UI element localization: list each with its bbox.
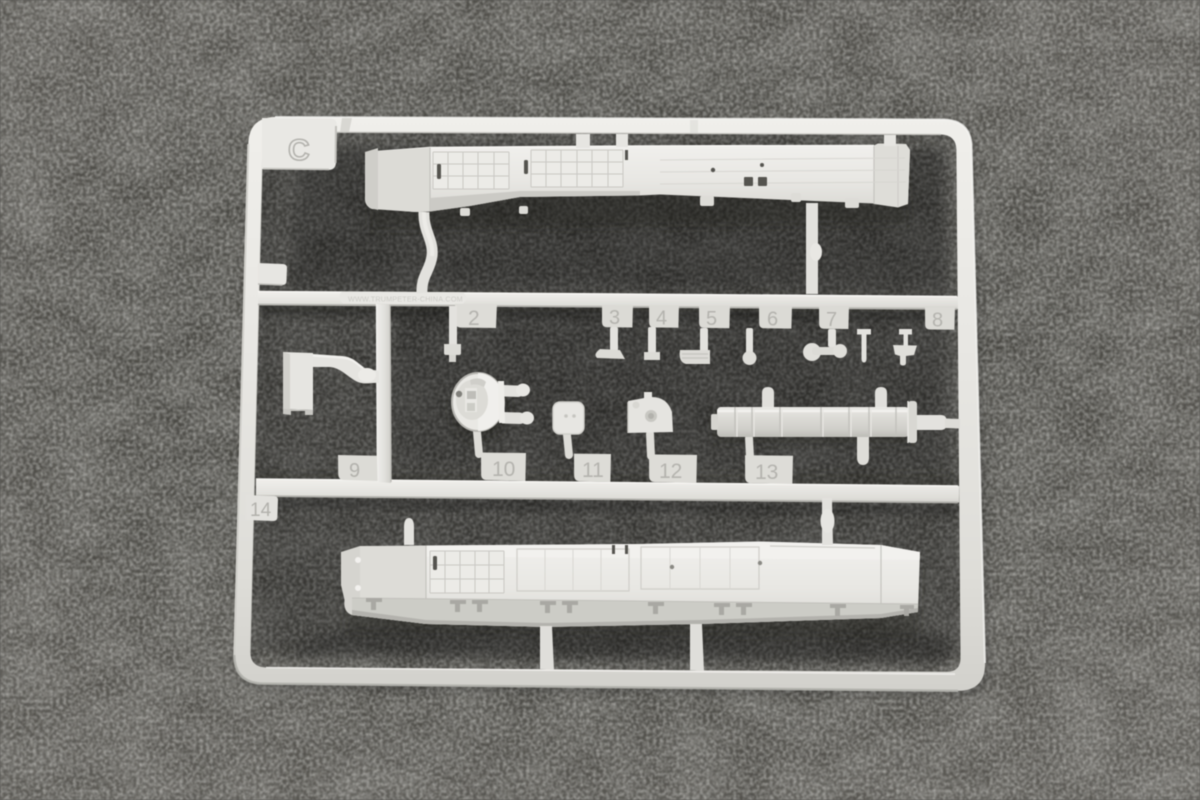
svg-text:6: 6: [767, 308, 778, 330]
svg-text:12: 12: [659, 460, 682, 483]
svg-text:14: 14: [250, 500, 272, 521]
svg-text:8: 8: [932, 310, 943, 332]
svg-text:13: 13: [755, 461, 778, 484]
svg-text:C: C: [288, 134, 310, 167]
svg-text:11: 11: [582, 459, 604, 482]
svg-text:5: 5: [706, 308, 717, 330]
svg-text:2: 2: [468, 307, 480, 330]
svg-text:10: 10: [492, 458, 515, 481]
svg-text:4: 4: [656, 308, 667, 330]
svg-text:WWW.TRUMPETER-CHINA.COM: WWW.TRUMPETER-CHINA.COM: [348, 295, 463, 304]
svg-text:9: 9: [349, 460, 360, 482]
svg-text:7: 7: [826, 309, 837, 331]
svg-text:3: 3: [609, 307, 620, 329]
